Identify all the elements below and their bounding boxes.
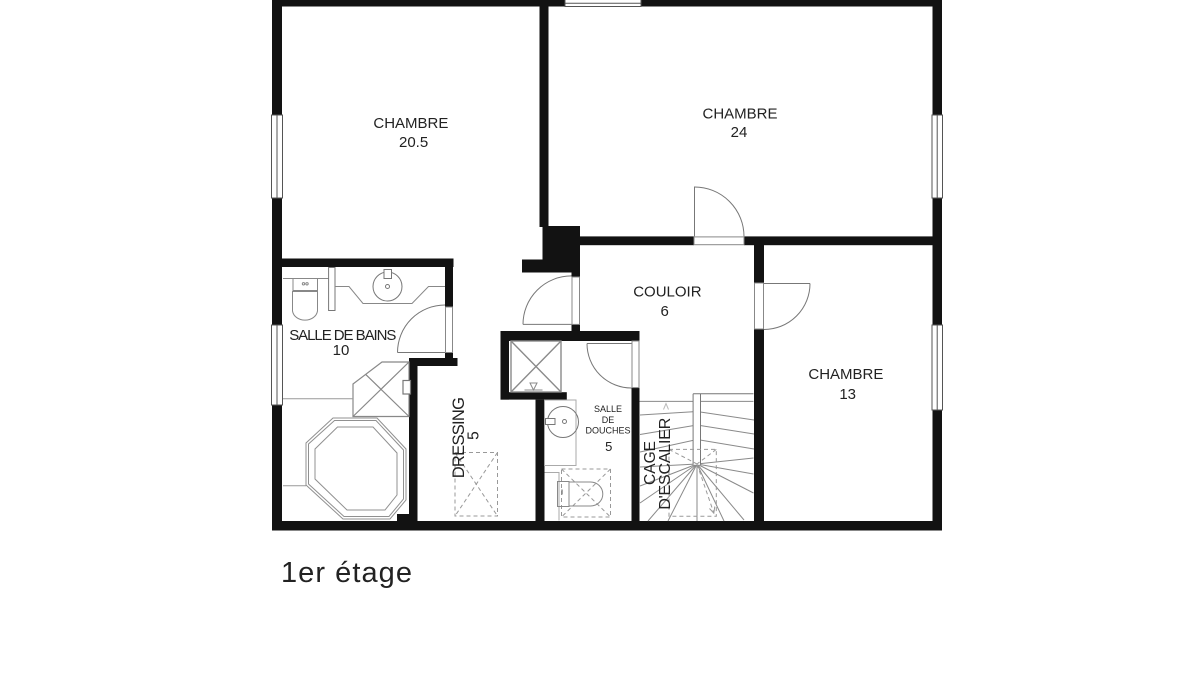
svg-text:13: 13 xyxy=(839,386,856,403)
svg-text:CHAMBRE: CHAMBRE xyxy=(373,115,448,132)
svg-text:D'ESCALIER: D'ESCALIER xyxy=(657,418,674,510)
svg-text:SALLE: SALLE xyxy=(594,404,622,414)
svg-text:COULOIR: COULOIR xyxy=(633,284,702,301)
svg-text:20.5: 20.5 xyxy=(399,134,428,151)
svg-text:DE: DE xyxy=(602,415,615,425)
svg-text:5: 5 xyxy=(466,431,483,440)
svg-text:10: 10 xyxy=(333,342,350,359)
svg-text:24: 24 xyxy=(731,124,748,141)
svg-text:DOUCHES: DOUCHES xyxy=(585,426,630,436)
svg-text:5: 5 xyxy=(605,439,612,454)
svg-text:6: 6 xyxy=(661,303,669,320)
svg-text:1er étage: 1er étage xyxy=(281,557,413,589)
svg-text:CHAMBRE: CHAMBRE xyxy=(808,366,883,383)
svg-text:CHAMBRE: CHAMBRE xyxy=(702,105,777,122)
